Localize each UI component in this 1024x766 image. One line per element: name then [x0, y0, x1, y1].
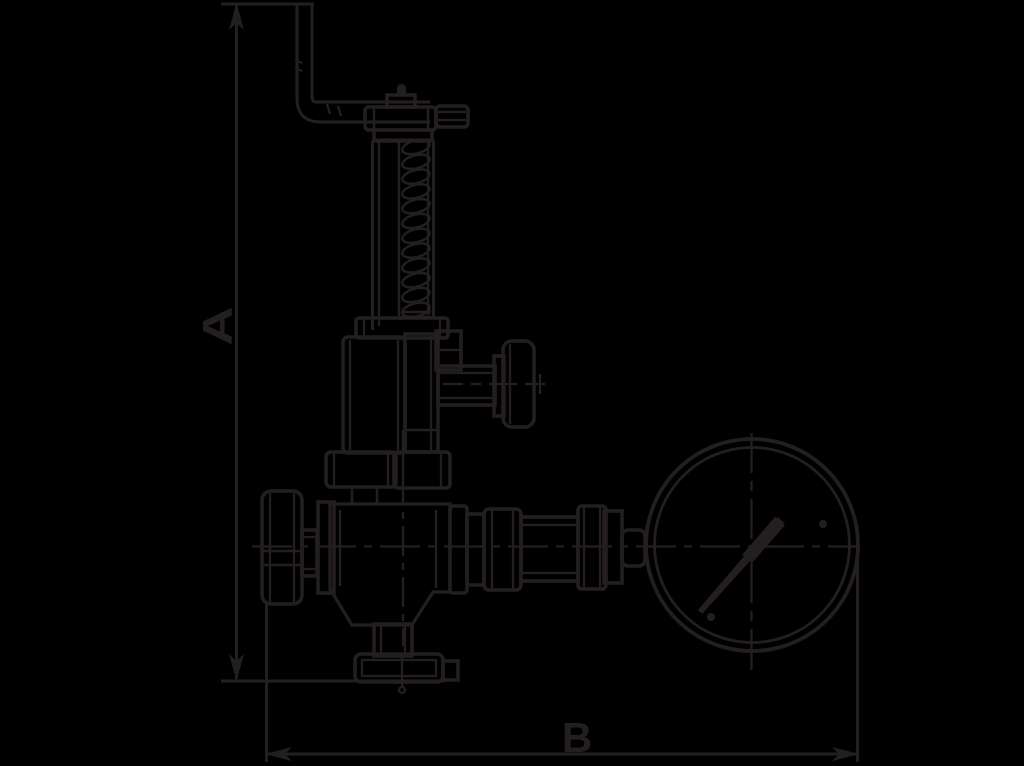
svg-text:A: A: [195, 306, 242, 345]
svg-text:B: B: [562, 714, 592, 761]
